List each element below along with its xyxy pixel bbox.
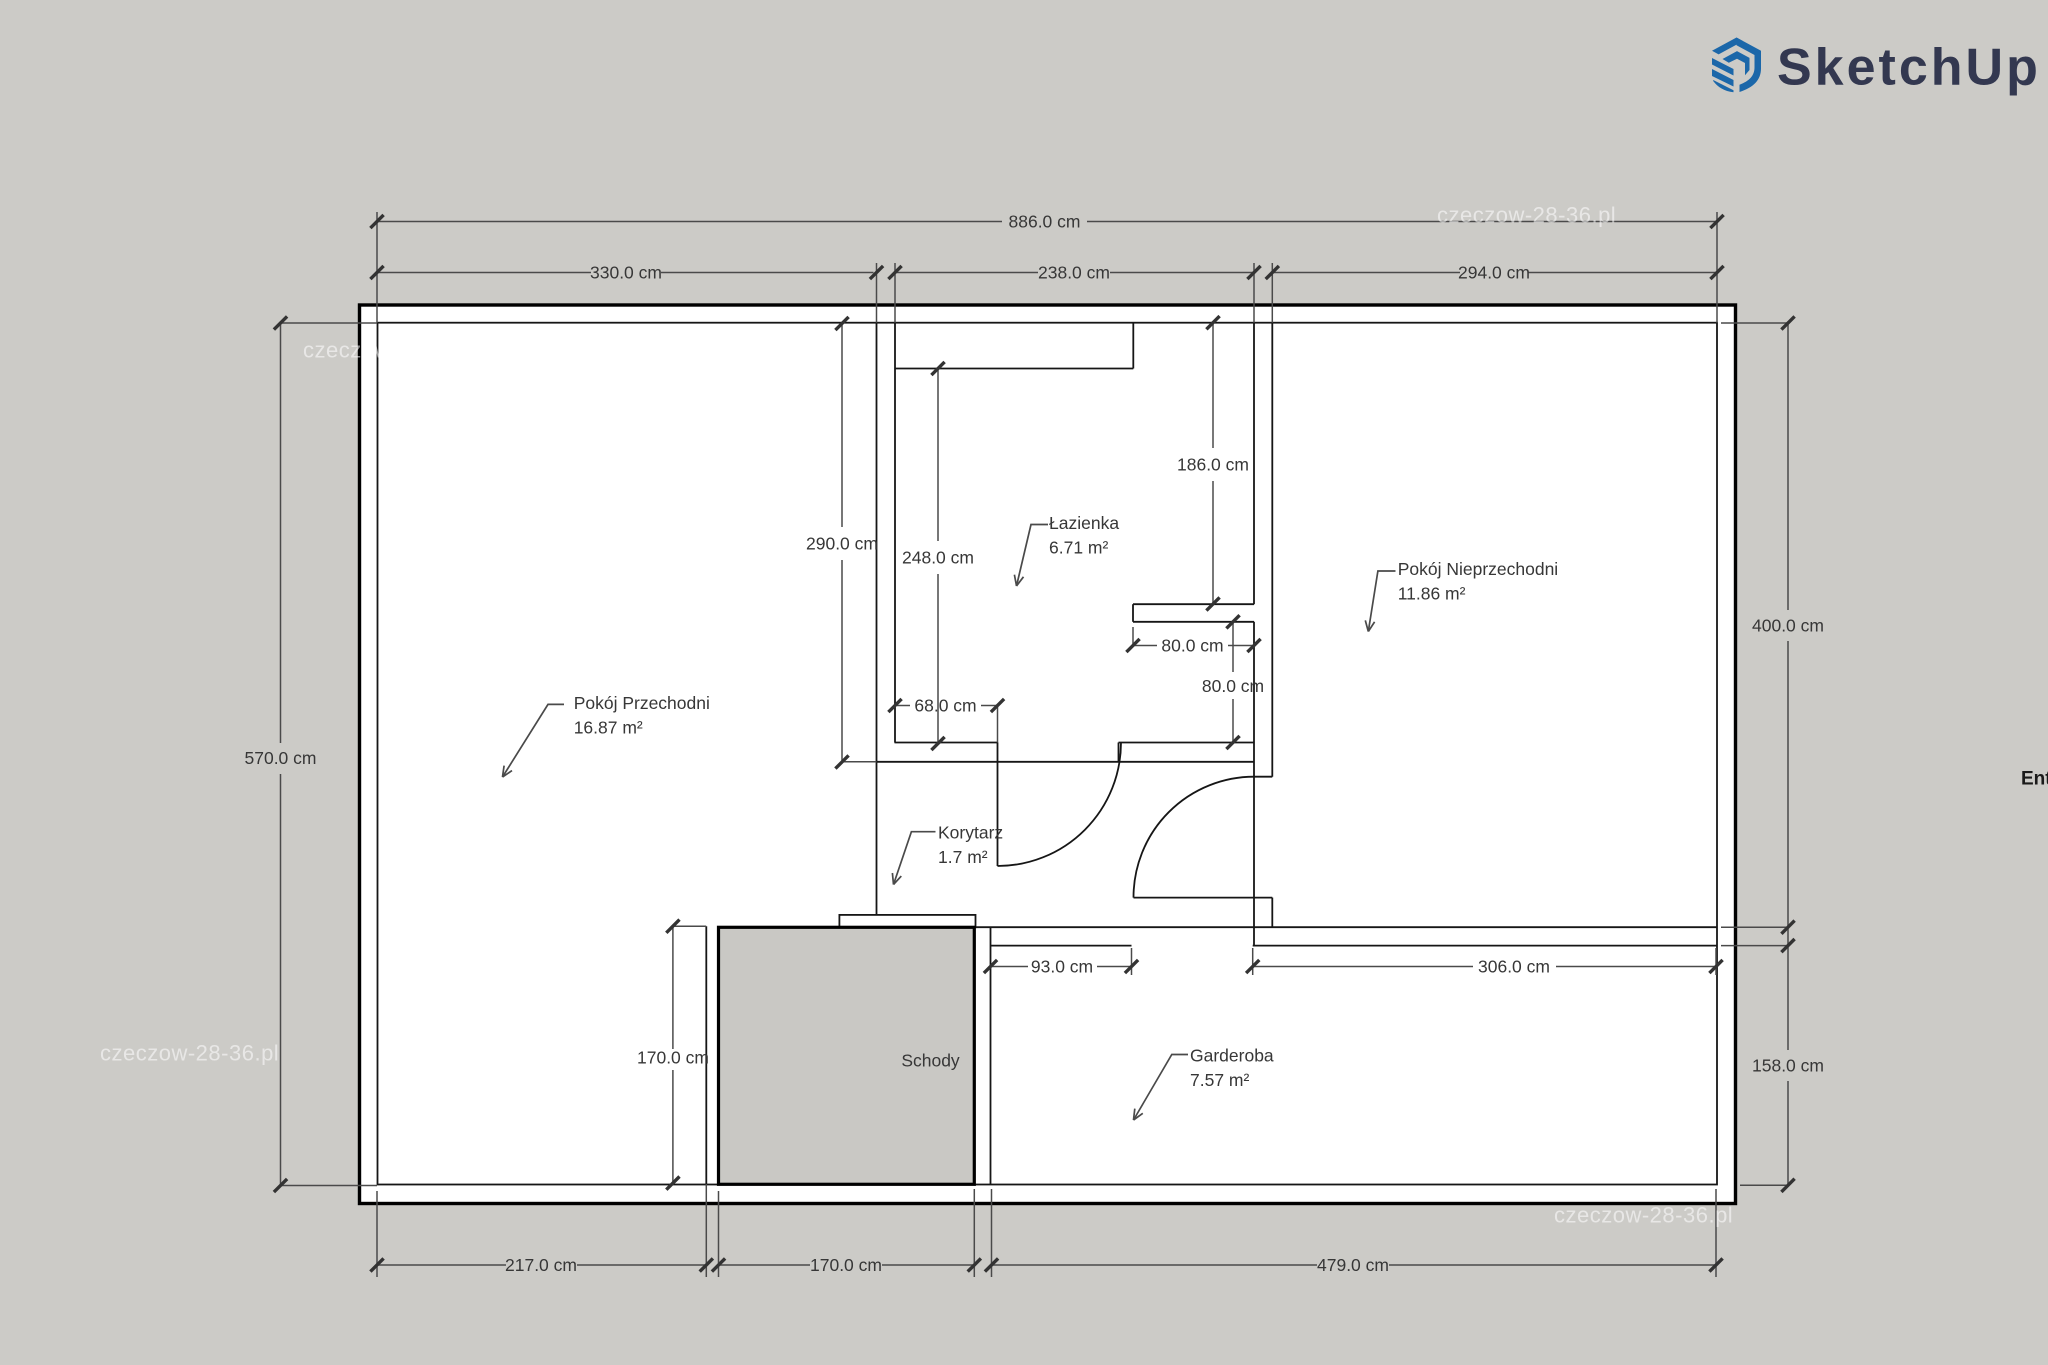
svg-text:Schody: Schody bbox=[901, 1051, 960, 1071]
svg-text:czeczow-28-36.pl: czeczow-28-36.pl bbox=[303, 338, 482, 363]
svg-text:217.0 cm: 217.0 cm bbox=[505, 1255, 577, 1275]
svg-text:400.0 cm: 400.0 cm bbox=[1752, 616, 1824, 636]
svg-text:Łazienka: Łazienka bbox=[1049, 513, 1119, 533]
svg-text:294.0 cm: 294.0 cm bbox=[1458, 263, 1530, 283]
svg-text:80.0 cm: 80.0 cm bbox=[1202, 676, 1264, 696]
svg-text:170.0 cm: 170.0 cm bbox=[810, 1255, 882, 1275]
svg-text:93.0 cm: 93.0 cm bbox=[1031, 957, 1093, 977]
svg-text:886.0 cm: 886.0 cm bbox=[1009, 212, 1081, 232]
svg-text:186.0 cm: 186.0 cm bbox=[1177, 455, 1249, 475]
svg-text:306.0 cm: 306.0 cm bbox=[1478, 957, 1550, 977]
svg-text:7.57 m²: 7.57 m² bbox=[1190, 1070, 1249, 1090]
svg-text:238.0 cm: 238.0 cm bbox=[1038, 263, 1110, 283]
svg-text:16.87 m²: 16.87 m² bbox=[574, 718, 643, 738]
svg-text:570.0 cm: 570.0 cm bbox=[245, 748, 317, 768]
svg-text:czeczow-28-36.pl: czeczow-28-36.pl bbox=[1554, 1203, 1733, 1228]
svg-text:290.0 cm: 290.0 cm bbox=[806, 534, 878, 554]
svg-text:Pokój Nieprzechodni: Pokój Nieprzechodni bbox=[1398, 559, 1559, 579]
svg-text:Pokój Przechodni: Pokój Przechodni bbox=[574, 693, 710, 713]
svg-text:479.0 cm: 479.0 cm bbox=[1317, 1255, 1389, 1275]
svg-text:1.7 m²: 1.7 m² bbox=[938, 847, 988, 867]
svg-text:czeczow-28-36.pl: czeczow-28-36.pl bbox=[1437, 203, 1616, 228]
svg-text:6.71 m²: 6.71 m² bbox=[1049, 538, 1108, 558]
svg-text:248.0 cm: 248.0 cm bbox=[902, 548, 974, 568]
svg-text:Garderoba: Garderoba bbox=[1190, 1046, 1274, 1066]
svg-text:170.0 cm: 170.0 cm bbox=[637, 1048, 709, 1068]
svg-text:SketchUp: SketchUp bbox=[1777, 39, 2041, 97]
svg-text:czeczow-28-36.pl: czeczow-28-36.pl bbox=[100, 1041, 279, 1066]
svg-text:80.0 cm: 80.0 cm bbox=[1161, 636, 1223, 656]
svg-text:68.0 cm: 68.0 cm bbox=[914, 696, 976, 716]
svg-text:330.0 cm: 330.0 cm bbox=[590, 263, 662, 283]
svg-text:158.0 cm: 158.0 cm bbox=[1752, 1055, 1824, 1075]
svg-text:Enter: Enter bbox=[2021, 769, 2048, 790]
svg-text:Korytarz: Korytarz bbox=[938, 823, 1003, 843]
svg-text:11.86 m²: 11.86 m² bbox=[1398, 584, 1466, 604]
